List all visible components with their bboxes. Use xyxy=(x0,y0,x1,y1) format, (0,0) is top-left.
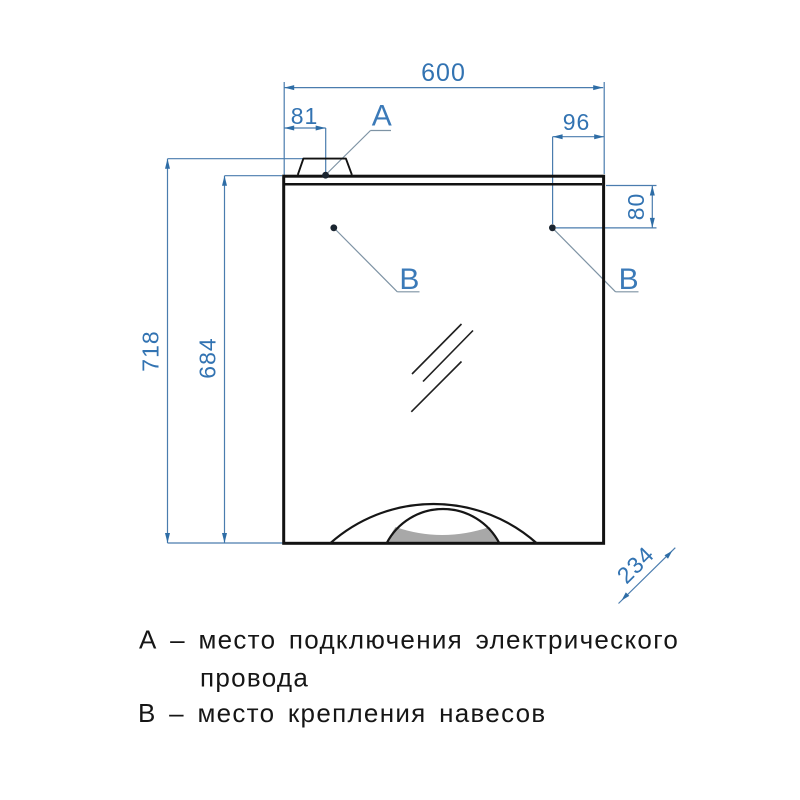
svg-text:684: 684 xyxy=(195,337,221,378)
svg-text:В: В xyxy=(619,263,639,296)
svg-text:В: В xyxy=(399,263,419,296)
svg-text:81: 81 xyxy=(291,103,319,129)
svg-text:234: 234 xyxy=(612,541,660,589)
svg-text:В – место крепления навесов: В – место крепления навесов xyxy=(138,698,547,728)
svg-text:A: A xyxy=(372,100,392,133)
svg-text:96: 96 xyxy=(563,109,591,135)
svg-text:80: 80 xyxy=(623,193,649,221)
svg-text:провода: провода xyxy=(200,663,309,693)
svg-text:600: 600 xyxy=(421,59,466,87)
svg-text:718: 718 xyxy=(138,330,164,371)
svg-text:А – место подключения электрич: А – место подключения электрического xyxy=(139,625,679,655)
